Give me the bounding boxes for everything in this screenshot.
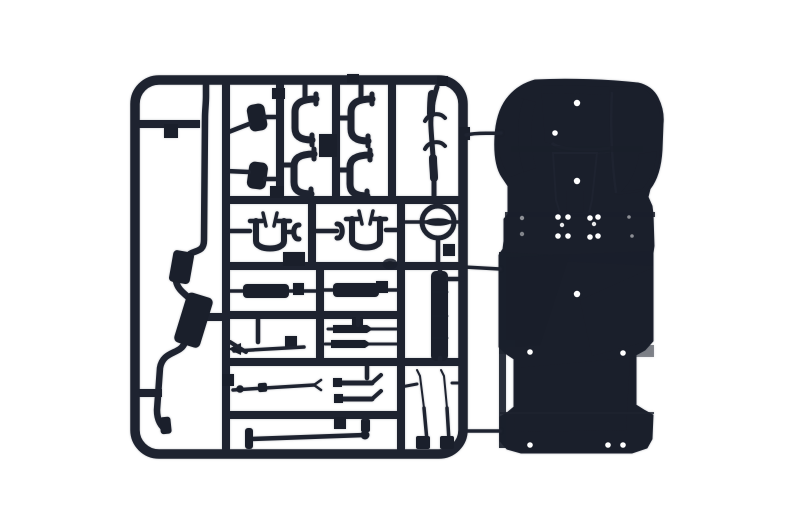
tie-rod-collar xyxy=(258,383,268,393)
runner-tab xyxy=(319,134,337,157)
part-mount-blocks xyxy=(226,103,280,191)
tie-rod-fork xyxy=(314,380,321,390)
part-resonator-box xyxy=(168,250,194,285)
drive-shaft-blade xyxy=(333,325,373,333)
runner-tab xyxy=(270,186,284,198)
part-drive-shafts xyxy=(228,315,397,355)
runner-tab xyxy=(443,244,455,256)
runner-tab xyxy=(283,252,305,266)
ejector-pin-hole xyxy=(592,222,596,226)
wiper-gates xyxy=(401,383,463,387)
ejector-pin-hole xyxy=(555,233,561,239)
ejector-pin-hole xyxy=(565,233,571,239)
runner-tab xyxy=(285,336,297,347)
ejector-pin-hole xyxy=(527,349,533,355)
chassis-notch-shadow-right xyxy=(636,345,654,357)
ejector-pin-hole xyxy=(565,214,571,220)
tie-rod-balljoint xyxy=(236,385,244,393)
ejector-pin-hole xyxy=(587,215,593,221)
rod-barbs xyxy=(425,114,445,149)
ejector-pin-hole xyxy=(574,291,580,297)
leaf-spring-joint xyxy=(376,281,388,293)
ejector-pin-hole xyxy=(595,233,601,239)
u-mount-prongs xyxy=(359,211,373,224)
photo-stage xyxy=(0,0,800,530)
ejector-pin-hole xyxy=(630,234,634,238)
gate-mark-core xyxy=(386,261,394,267)
link-bar-tab xyxy=(334,394,343,403)
part-tie-rods xyxy=(233,362,381,403)
ejector-pin-hole xyxy=(527,442,533,448)
runner-tab xyxy=(347,74,359,83)
chassis-tunnel-notch xyxy=(566,191,584,213)
chassis-notch-shadow-left xyxy=(499,340,515,354)
mount-block xyxy=(246,161,269,190)
ejector-pin-hole xyxy=(620,350,626,356)
part-side-rail xyxy=(431,266,463,362)
u-mount-prongs xyxy=(263,213,277,226)
leaf-spring-joint xyxy=(293,283,304,295)
sprue-gate-mark xyxy=(383,259,398,270)
part-leaf-springs xyxy=(230,281,397,298)
chassis-bed-sheen-3 xyxy=(514,358,630,432)
front-axle-joint-block xyxy=(361,419,370,432)
part-front-axle xyxy=(245,415,370,449)
ejector-pin-hole xyxy=(520,232,524,236)
runner-tab xyxy=(437,76,448,86)
part-tie-rod xyxy=(233,385,314,390)
ejector-pin-hole xyxy=(520,216,524,220)
wiper-foot xyxy=(416,436,430,449)
ejector-pin-hole xyxy=(555,214,561,220)
product-photo-svg xyxy=(0,0,800,530)
part-wiper-blade xyxy=(441,370,447,408)
chassis-floor-step-shadow xyxy=(511,146,643,152)
part-steering-wheel xyxy=(401,206,463,266)
ejector-pin-hole xyxy=(605,442,611,448)
parts-sprue xyxy=(135,74,501,454)
ejector-pin-hole xyxy=(574,178,580,184)
sprue-chassis-connectors xyxy=(464,133,501,431)
exhaust-pipe-foot xyxy=(159,416,172,434)
chassis-floor-pan xyxy=(495,79,664,453)
ejector-pin-hole xyxy=(552,130,558,136)
part-leaf-spring xyxy=(333,283,379,297)
ejector-pin-hole xyxy=(595,214,601,220)
part-link-bar xyxy=(340,383,372,399)
part-u-mount xyxy=(352,219,380,248)
part-wiper-blade xyxy=(417,370,424,408)
link-bar-hooks xyxy=(372,375,381,399)
runner-tab xyxy=(222,374,234,386)
front-axle-cap xyxy=(245,428,253,449)
wiper-foot xyxy=(440,436,454,449)
part-wiper-blades xyxy=(401,370,463,449)
runner-tab xyxy=(334,417,346,429)
part-u-mount xyxy=(256,221,284,249)
chassis-bed-step-shadow xyxy=(505,212,655,217)
ejector-pin-hole xyxy=(587,234,593,240)
part-leaf-spring xyxy=(243,284,289,298)
runner-tab xyxy=(164,124,178,138)
link-bar-tab xyxy=(333,378,342,387)
part-gear-lever-rod xyxy=(425,87,445,200)
drive-shaft-blade xyxy=(331,340,371,348)
runner-tab xyxy=(272,88,285,99)
runner-tabs xyxy=(164,74,470,429)
ejector-pin-hole xyxy=(627,215,631,219)
ejector-pin-hole xyxy=(574,100,580,106)
front-axle-rod xyxy=(251,435,365,439)
ejector-pin-hole xyxy=(620,442,626,448)
ejector-pin-hole xyxy=(560,223,564,227)
u-mount-gates xyxy=(226,230,401,232)
